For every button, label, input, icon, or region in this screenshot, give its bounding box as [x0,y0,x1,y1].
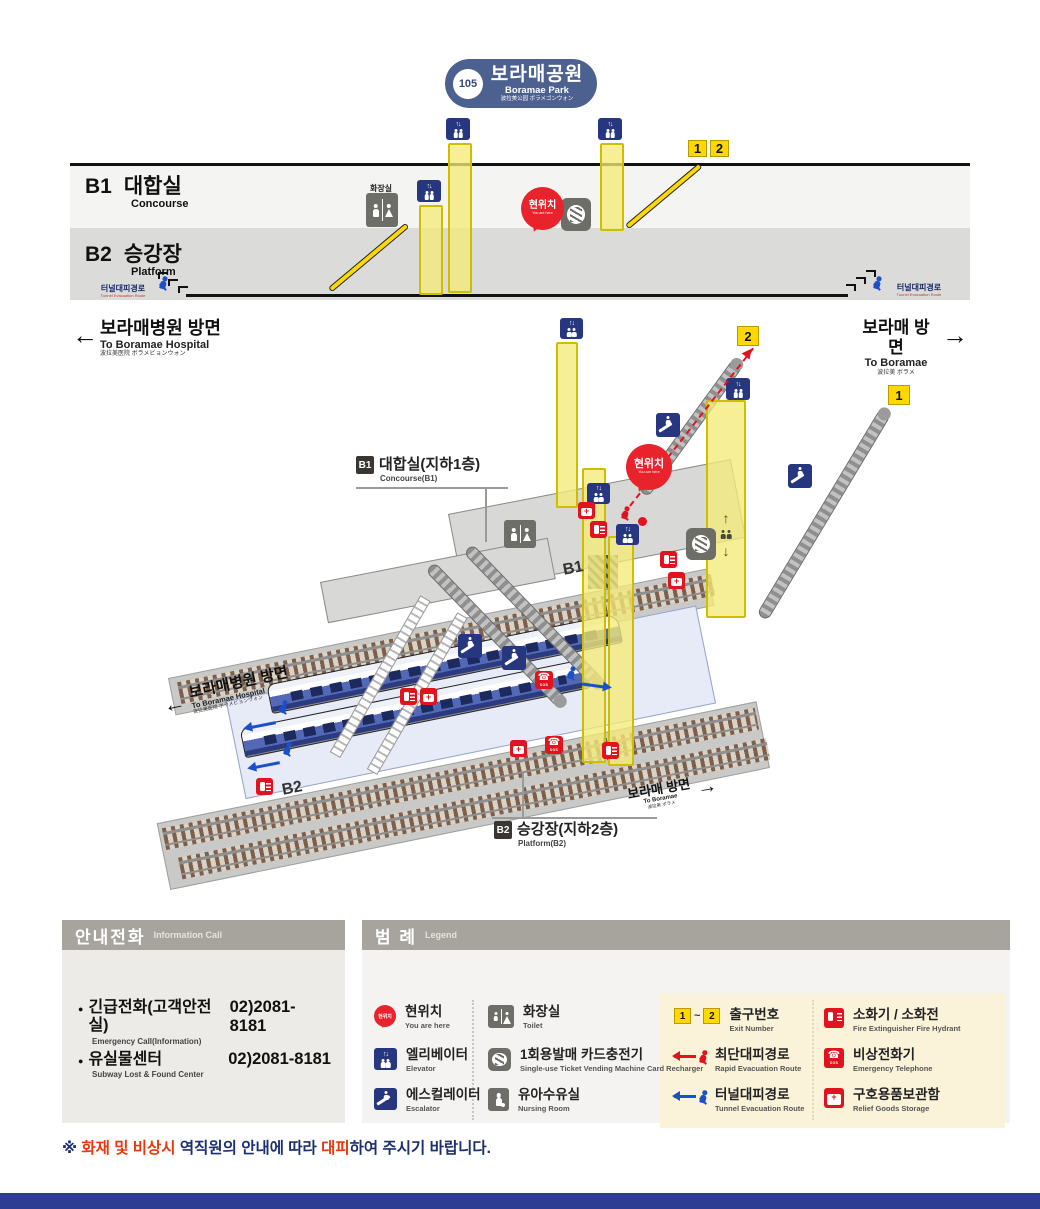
exit-badge: 2 [703,1008,720,1024]
fire-extinguisher-icon [256,778,273,795]
b1-callout-line [485,488,487,542]
direction-left: 보라매병원 방면 To Boramae Hospital 波拉美医院 ボラメビョ… [100,318,221,358]
escalator-icon [458,634,482,658]
b2-callout: B2승강장(지하2층) Platform(B2) [494,821,618,849]
legend-elevator: ↑↓ 엘리베이터Elevator [374,1048,468,1073]
elevator-icon: ↑↓ [587,483,610,504]
emergency-phone-icon: ☎SOS [824,1048,844,1068]
elevator-icon: ↑↓ [598,118,622,140]
ground-surface-line [70,163,970,166]
fire-extinguisher-icon [824,1008,844,1028]
relief-goods-icon: + [420,688,437,705]
direction-right: 보라매 방면 To Boramae 波拉美 ボラメ [855,318,937,377]
elevator-icon: ↑↓ [446,118,470,140]
escalator-icon [374,1088,397,1110]
elevator-icon: ↑↓ [417,180,441,202]
toilet-icon [488,1005,514,1028]
right-arrow: → [942,322,968,348]
you-are-here-icon: 현위치 [374,1005,396,1027]
escalator-icon [502,646,526,670]
legend-body: 현위치 현위치You are here ↑↓ 엘리베이터Elevator 에스컬… [362,950,1010,1123]
legend-nursing-room: 유아수유실Nursing Room [488,1088,580,1113]
elevator-icon: ↑↓ [374,1048,397,1070]
station-name-korean: 보라매공원 [483,65,591,84]
legend-relief-goods: + 구호용품보관함Relief Goods Storage [824,1088,940,1113]
info-row-lost-found: ● 유실물센터 02)2081-8181 Subway Lost & Found… [78,1050,331,1080]
b2-callout-line [492,817,657,819]
station-title-pill: 105 보라매공원 Boramae Park 波拉美公园 ボラメゴンウォン [445,59,597,108]
b1-floor-label: B1대합실 Concourse [85,176,188,210]
station-name-cjk: 波拉美公园 ボラメゴンウォン [483,97,591,103]
fire-extinguisher-icon [660,551,677,568]
elevator-shaft [556,342,578,508]
exit-badge: 1 [674,1008,691,1024]
runner-icon [698,1050,708,1069]
station-name: 보라매공원 Boramae Park 波拉美公园 ボラメゴンウォン [483,65,597,103]
fire-extinguisher-icon [590,521,607,538]
legend-tunnel-route: 터널대피경로Tunnel Evacuation Route [674,1088,804,1113]
route-start-dot [638,517,647,526]
elevator-icon: ↑↓ [560,318,583,339]
relief-goods-icon: + [578,502,595,519]
toilet-icon [366,193,398,227]
exit-2-badge: 2 [737,326,759,346]
card-recharger-icon [561,198,591,231]
left-arrow: ← [72,322,98,348]
escalator-icon [656,413,680,437]
cross-section-b2-band [70,228,970,300]
legend-toilet: 화장실Toilet [488,1005,560,1030]
tunnel-evacuation-label-left: 터널대피경로 Tunnel Evacuation Route [92,285,154,298]
station-name-english: Boramae Park [483,86,591,96]
evacuation-notice: ※ 화재 및 비상시 역직원의 안내에 따라 대피하여 주시기 바랍니다. [62,1136,491,1158]
phone-number: 02)2081-8181 [228,1050,331,1069]
b2-callout-line [522,773,524,817]
shaft-direction-glyphs: ↑ ↓ [712,510,740,559]
legend-exit-number: 1 ~ 2 출구번호Exit Number [674,1008,779,1033]
cross-section-b1-band [70,166,970,228]
b1-callout: B1대합실(지하1층) Concourse(B1) [356,456,480,484]
elevator-shaft [419,205,443,295]
phone-number: 02)2081-8181 [230,998,331,1036]
b2-code: B2 [85,244,112,265]
elevator-shaft [448,143,472,293]
you-are-here-balloon: 현위치 You are here [626,444,672,490]
b2-floor-label: B2승강장 Platform [85,244,182,278]
tunnel-evacuation-label-right: 터널대피경로 Tunnel Evacuation Route [888,284,950,297]
info-row-emergency: ● 긴급전화(고객안전실) 02)2081-8181 Emergency Cal… [78,998,331,1046]
fire-extinguisher-icon [400,688,417,705]
nursing-room-icon [488,1088,509,1111]
legend-rapid-route: 최단대피경로Rapid Evacuation Route [674,1048,801,1073]
legend-escalator: 에스컬레이터Escalator [374,1088,481,1113]
escalator-to-exit-1 [756,408,891,620]
legend-fire-extinguisher: 소화기 / 소화전Fire Extinguisher Fire Hydrant [824,1008,961,1033]
information-call-panel: 안내전화 Information Call ● 긴급전화(고객안전실) 02)2… [62,920,345,1123]
elevator-shaft [608,536,634,766]
b2-floor-text: B2 [280,778,304,800]
card-recharger-icon [488,1048,511,1071]
b2-name: 승강장 [124,244,182,265]
bottom-accent-strip [0,1193,1040,1209]
exit-2-badge: 2 [710,140,729,157]
platform-floor-line [186,294,848,297]
fire-extinguisher-icon [602,742,619,759]
station-number-badge: 105 [453,69,483,99]
legend-panel: 범 례 Legend 현위치 현위치You are here ↑↓ 엘리베이터E… [362,920,1010,1123]
b1-name: 대합실 [124,176,182,197]
information-call-body: ● 긴급전화(고객안전실) 02)2081-8181 Emergency Cal… [62,950,345,1123]
relief-goods-icon: + [824,1088,844,1108]
station-map: 105 보라매공원 Boramae Park 波拉美公园 ボラメゴンウォン B1… [0,0,1040,1209]
relief-goods-icon: + [510,740,527,757]
exit-1-badge: 1 [888,385,910,405]
b1-name-en: Concourse [131,199,188,210]
toilet-label: 화장실 [364,183,398,194]
elevator-shaft [706,400,746,618]
legend-emergency-phone: ☎SOS 비상전화기Emergency Telephone [824,1048,932,1073]
you-are-here-balloon: 현위치 You are here [521,187,564,230]
elevator-icon: ↑↓ [726,378,750,400]
toilet-icon [504,520,536,548]
legend-you-are-here: 현위치 현위치You are here [374,1005,450,1030]
card-recharger-icon [686,528,716,560]
emergency-phone-icon: ☎SOS [535,671,553,689]
legend-header: 범 례 Legend [362,920,1010,950]
runner-icon [698,1090,708,1109]
rapid-route-arrow [674,1055,696,1058]
exit-1-badge: 1 [688,140,707,157]
elevator-shaft [600,143,624,231]
b2-name-en: Platform [131,267,182,278]
tunnel-route-arrow [674,1095,696,1098]
elevator-icon: ↑↓ [616,524,639,545]
escalator-icon [788,464,812,488]
legend-divider [812,1000,814,1120]
b1-floor-text: B1 [561,558,585,580]
relief-goods-icon: + [668,572,685,589]
emergency-phone-icon: ☎SOS [545,736,563,754]
b1-code: B1 [85,176,112,197]
information-call-header: 안내전화 Information Call [62,920,345,950]
